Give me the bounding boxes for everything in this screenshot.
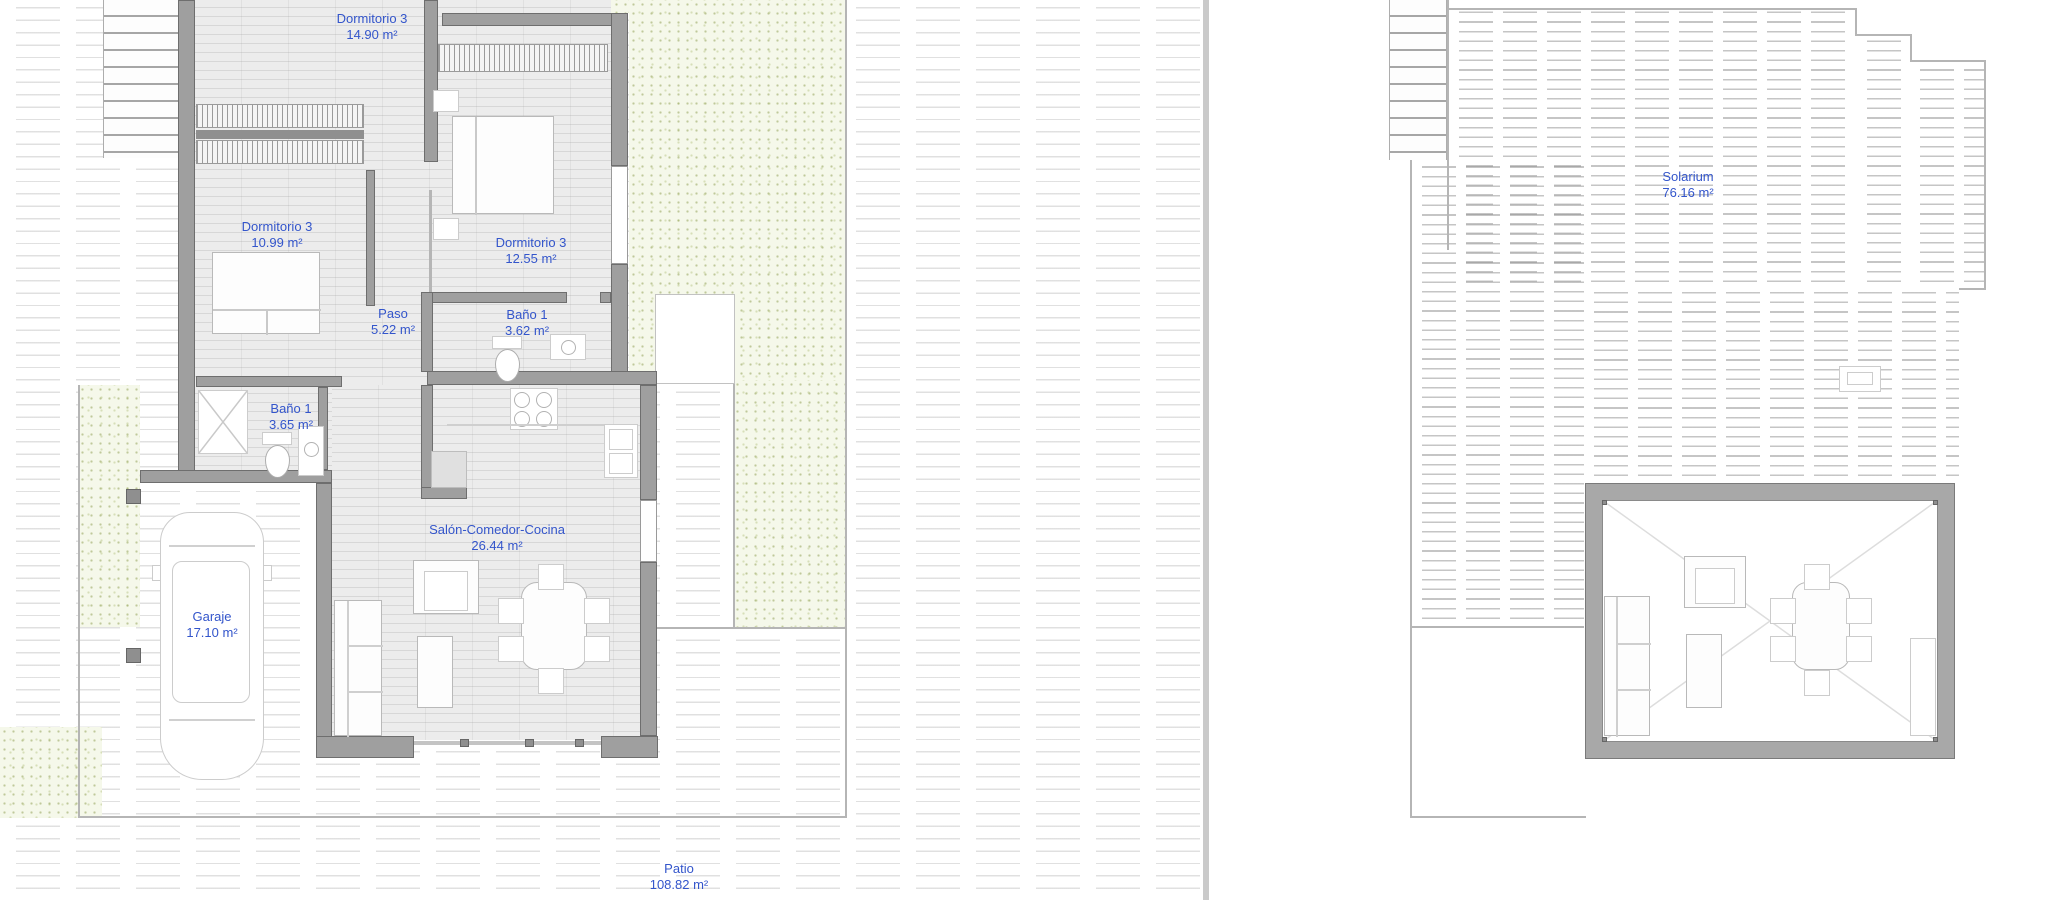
bed-pillow-divider: [266, 309, 268, 335]
sofa-back-line: [347, 601, 349, 737]
wardrobe: [196, 104, 364, 128]
chair: [538, 668, 564, 694]
room-area: 14.90 m²: [337, 27, 408, 43]
armchair-seat: [1695, 568, 1735, 604]
wall: [316, 736, 414, 758]
chair: [584, 598, 610, 624]
sink-bowl: [609, 453, 633, 474]
toilet-tank: [262, 432, 292, 445]
room-area: 10.99 m²: [242, 235, 313, 251]
room-area: 26.44 m²: [429, 538, 565, 554]
chair: [498, 636, 524, 662]
boundary-line: [733, 380, 735, 627]
chair: [1770, 598, 1796, 624]
armchair: [413, 560, 479, 614]
boundary-line: [78, 816, 847, 818]
corner-marker: [1602, 737, 1607, 742]
wall: [611, 13, 628, 166]
chair: [584, 636, 610, 662]
cabinet: [1910, 638, 1936, 736]
room-area: 17.10 m²: [186, 625, 237, 641]
dining-table: [521, 582, 587, 670]
wall: [196, 130, 364, 139]
car-rear-line: [169, 719, 255, 721]
room-label-garaje: Garaje 17.10 m²: [186, 609, 237, 641]
room-label-bano1-right: Baño 1 3.62 m²: [505, 307, 549, 339]
boundary-line: [1855, 34, 1912, 36]
window: [640, 500, 657, 562]
corner-marker: [1602, 500, 1607, 505]
solarium-roof-hatch: [1857, 36, 1910, 290]
panel-separator: [1203, 0, 1209, 900]
sofa-back-line: [1616, 597, 1618, 737]
corner-marker: [1933, 500, 1938, 505]
chair: [538, 564, 564, 590]
boundary-line: [1984, 60, 1986, 290]
room-name: Baño 1: [505, 307, 549, 323]
sofa-cushion-line: [347, 645, 383, 647]
armchair: [1684, 556, 1746, 608]
floor-plan-canvas: Dormitorio 3 14.90 m² Dormitorio 3 10.99…: [0, 0, 2048, 900]
shower-icon: [199, 391, 247, 453]
room-name: Salón-Comedor-Cocina: [429, 522, 565, 538]
sofa-cushion-line: [347, 691, 383, 693]
boundary-line: [1410, 158, 1412, 818]
wall: [442, 13, 612, 26]
wall: [316, 483, 332, 738]
room-label-solarium: Solarium 76.16 m²: [1662, 169, 1713, 201]
chair: [1846, 636, 1872, 662]
room-area: 3.62 m²: [505, 323, 549, 339]
door-mullion: [525, 739, 534, 747]
sofa: [1604, 596, 1650, 736]
boundary-line: [1855, 8, 1857, 36]
chair: [1770, 636, 1796, 662]
sofa: [334, 600, 382, 736]
room-name: Baño 1: [269, 401, 313, 417]
nightstand: [433, 218, 459, 240]
boundary-line: [1410, 816, 1586, 818]
bed-pillow-line: [475, 117, 477, 215]
wall: [640, 385, 657, 500]
coffee-table: [1686, 634, 1722, 708]
sink-basin: [304, 442, 319, 457]
shower-tray: [198, 390, 248, 454]
car-mirror: [263, 565, 272, 581]
chair: [1846, 598, 1872, 624]
window: [611, 166, 628, 264]
room-label-dormitorio3-left: Dormitorio 3 10.99 m²: [242, 219, 313, 251]
wall: [601, 736, 658, 758]
room-area: 108.82 m²: [650, 877, 709, 893]
room-label-paso: Paso 5.22 m²: [371, 306, 415, 338]
wall-line: [429, 190, 432, 292]
room-area: 5.22 m²: [371, 322, 415, 338]
wardrobe: [438, 44, 608, 72]
wall: [421, 487, 467, 499]
wall: [424, 0, 438, 162]
wall: [427, 371, 657, 385]
solarium-roof-hatch: [1584, 290, 1959, 484]
room-label-bano1-left: Baño 1 3.65 m²: [269, 401, 313, 433]
wall: [600, 292, 611, 303]
hob-burner: [536, 392, 552, 408]
solarium-roof-hatch: [1412, 158, 1584, 627]
chair: [1804, 670, 1830, 696]
sofa-cushion-line: [1616, 689, 1651, 691]
solarium-roof-hatch: [1910, 62, 1984, 290]
terrace: [655, 294, 735, 384]
sink-icon: [298, 426, 324, 476]
sink-bowl: [609, 429, 633, 450]
room-label-salon: Salón-Comedor-Cocina 26.44 m²: [429, 522, 565, 554]
garden-area: [733, 380, 845, 627]
wall: [421, 292, 433, 372]
door-mullion: [460, 739, 469, 747]
boundary-line: [1959, 288, 1986, 290]
wall: [196, 376, 342, 387]
room-label-patio: Patio 108.82 m²: [650, 861, 709, 893]
sofa-cushion-line: [1616, 643, 1651, 645]
wall: [178, 0, 195, 483]
fridge: [431, 451, 467, 488]
exterior-stairs: [103, 0, 179, 158]
room-name: Dormitorio 3: [242, 219, 313, 235]
door-mullion: [575, 739, 584, 747]
armchair-seat: [424, 571, 468, 611]
room-name: Garaje: [186, 609, 237, 625]
wardrobe: [196, 140, 364, 164]
car-hood-line: [169, 545, 255, 547]
bed: [212, 252, 320, 334]
counter-edge: [447, 424, 605, 426]
solarium-stairs: [1389, 0, 1447, 160]
garden-area: [0, 727, 102, 818]
room-name: Dormitorio 3: [337, 11, 408, 27]
boundary-line: [845, 0, 847, 818]
room-name: Patio: [650, 861, 709, 877]
roof-vent-inner: [1847, 372, 1873, 385]
kitchen-sink-icon: [604, 424, 638, 478]
room-label-dormitorio3-top: Dormitorio 3 14.90 m²: [337, 11, 408, 43]
sink-basin: [561, 340, 576, 355]
wall: [421, 292, 567, 303]
room-name: Dormitorio 3: [496, 235, 567, 251]
chair: [1804, 564, 1830, 590]
boundary-line: [1910, 60, 1986, 62]
sink-icon: [550, 334, 586, 360]
room-area: 76.16 m²: [1662, 185, 1713, 201]
room-area: 12.55 m²: [496, 251, 567, 267]
wall: [640, 562, 657, 736]
garage-post: [126, 648, 141, 663]
room-name: Solarium: [1662, 169, 1713, 185]
boundary-line: [1389, 8, 1857, 10]
room-name: Paso: [371, 306, 415, 322]
bed: [452, 116, 554, 214]
roof-vent: [1839, 366, 1881, 392]
garden-area: [78, 385, 140, 627]
boundary-line: [1412, 626, 1584, 628]
room-label-dormitorio3-right: Dormitorio 3 12.55 m²: [496, 235, 567, 267]
sliding-door: [414, 741, 601, 745]
car-icon: [160, 512, 264, 780]
chair: [498, 598, 524, 624]
stair-stringer-line: [1447, 0, 1449, 250]
coffee-table: [417, 636, 453, 708]
wall: [611, 264, 628, 385]
room-area: 3.65 m²: [269, 417, 313, 433]
nightstand: [433, 90, 459, 112]
corner-marker: [1933, 737, 1938, 742]
boundary-line: [78, 385, 80, 816]
garage-post: [126, 489, 141, 504]
hob-burner: [514, 392, 530, 408]
car-mirror: [152, 565, 161, 581]
boundary-line: [1910, 34, 1912, 62]
dining-table: [1792, 582, 1850, 670]
wall: [366, 170, 375, 306]
boundary-line: [657, 627, 847, 629]
